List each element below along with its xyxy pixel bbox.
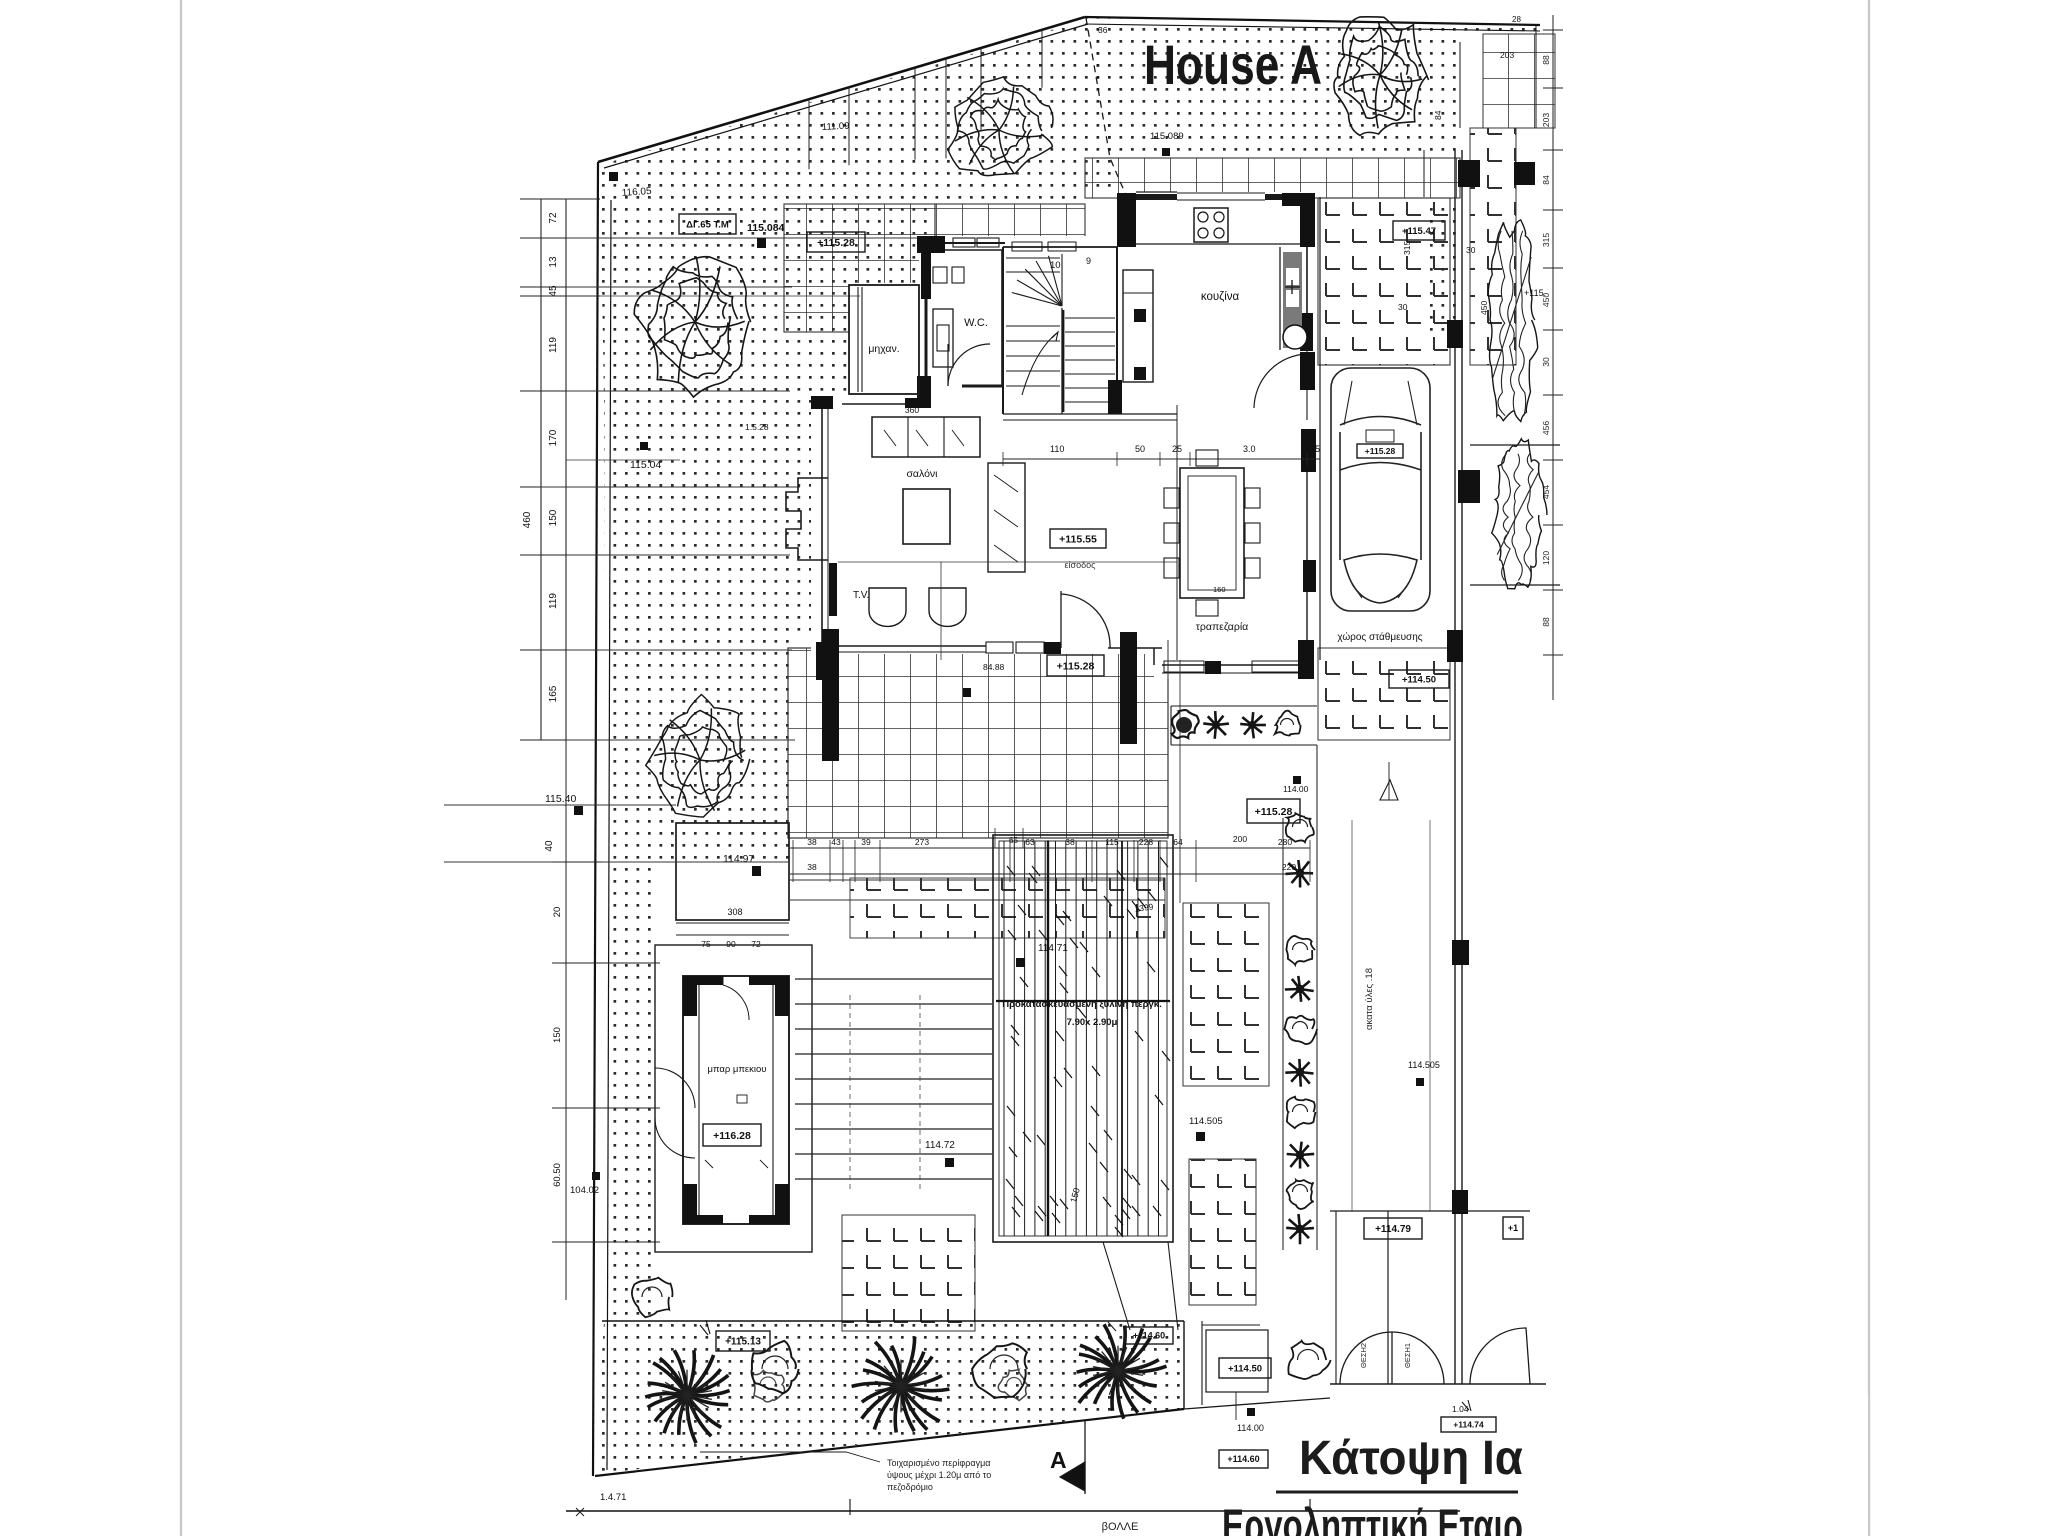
svg-text:88: 88: [1541, 55, 1551, 65]
svg-text:116.05: 116.05: [621, 186, 652, 199]
svg-text:10: 10: [1050, 260, 1061, 271]
svg-text:+115.: +115.: [1524, 288, 1546, 298]
svg-text:114.505: 114.505: [1408, 1060, 1440, 1070]
svg-text:84.88: 84.88: [983, 662, 1005, 672]
svg-text:1.4.71: 1.4.71: [600, 1492, 626, 1503]
svg-text:114.00: 114.00: [1237, 1423, 1264, 1433]
svg-text:60.50: 60.50: [552, 1163, 563, 1187]
svg-text:χώρος στάθμευσης: χώρος στάθμευσης: [1337, 631, 1422, 643]
svg-text:7.90x 2.90μ: 7.90x 2.90μ: [1067, 1017, 1118, 1028]
svg-text:28: 28: [1512, 15, 1521, 24]
svg-text:+114.60: +114.60: [1133, 1331, 1165, 1341]
svg-text:115.40: 115.40: [545, 793, 576, 805]
svg-text:+115.13: +115.13: [725, 1337, 761, 1348]
svg-text:Εργοληπτική Εταιρ: Εργοληπτική Εταιρ: [1222, 1499, 1523, 1536]
svg-text:Κάτοψη Ια: Κάτοψη Ια: [1299, 1432, 1523, 1485]
svg-text:38: 38: [807, 837, 817, 847]
svg-text:+114.50: +114.50: [1228, 1363, 1262, 1374]
svg-text:203: 203: [1541, 113, 1551, 127]
svg-text:+114.60: +114.60: [1227, 1454, 1259, 1464]
svg-text:+114.50: +114.50: [1402, 674, 1436, 685]
svg-text:160: 160: [1213, 585, 1226, 594]
svg-text:150: 150: [548, 509, 559, 526]
svg-text:σαλόνι: σαλόνι: [906, 468, 938, 480]
svg-text:65: 65: [1009, 836, 1018, 845]
svg-text:Τοιχαρισμένο περίφραγμα: Τοιχαρισμένο περίφραγμα: [887, 1458, 990, 1468]
svg-text:20: 20: [552, 907, 563, 918]
svg-text:119: 119: [548, 337, 559, 353]
svg-text:+115.28: +115.28: [1057, 660, 1095, 672]
svg-text:200: 200: [1233, 834, 1247, 844]
svg-text:308: 308: [727, 907, 742, 917]
svg-text:ακατα ύλες .18: ακατα ύλες .18: [1364, 968, 1375, 1030]
svg-text:30: 30: [1541, 357, 1551, 367]
svg-text:πεζοδρόμιο: πεζοδρόμιο: [887, 1482, 933, 1492]
svg-text:38: 38: [807, 862, 817, 872]
svg-text:ΔΓ.65 Τ.Μ: ΔΓ.65 Τ.Μ: [686, 219, 729, 230]
svg-text:40: 40: [544, 840, 555, 852]
svg-text:315: 315: [1541, 233, 1551, 247]
svg-text:84: 84: [1433, 110, 1443, 120]
svg-text:1.04: 1.04: [1452, 1404, 1469, 1414]
svg-text:9: 9: [1086, 256, 1091, 266]
svg-text:30: 30: [1398, 302, 1408, 312]
svg-text:W.C.: W.C.: [964, 317, 988, 329]
svg-text:90: 90: [726, 939, 736, 949]
svg-text:119: 119: [548, 593, 559, 609]
svg-text:450: 450: [1479, 301, 1489, 315]
svg-text:72: 72: [751, 939, 761, 949]
svg-text:A: A: [1050, 1447, 1067, 1473]
svg-text:165: 165: [548, 685, 559, 702]
svg-text:House A: House A: [1144, 33, 1322, 96]
svg-text:36: 36: [1098, 25, 1108, 35]
svg-text:63: 63: [1025, 837, 1035, 847]
svg-text:115.089: 115.089: [1150, 131, 1184, 142]
svg-text:+115.28: +115.28: [1365, 446, 1396, 456]
svg-text:456: 456: [1541, 421, 1551, 435]
svg-text:280: 280: [1278, 837, 1292, 847]
svg-text:114.505: 114.505: [1189, 1116, 1223, 1127]
svg-text:βΟΛΛΕ: βΟΛΛΕ: [1102, 1521, 1139, 1533]
svg-text:228: 228: [1139, 837, 1153, 847]
svg-text:T.V.: T.V.: [853, 590, 869, 601]
svg-text:+115.28: +115.28: [1255, 806, 1293, 818]
svg-text:+1: +1: [1508, 1223, 1518, 1233]
svg-text:460: 460: [522, 511, 533, 528]
svg-text:115.04: 115.04: [630, 459, 661, 471]
svg-text:μηχαν.: μηχαν.: [868, 343, 899, 355]
svg-text:84: 84: [1541, 175, 1551, 185]
svg-text:72: 72: [548, 212, 559, 224]
svg-text:13: 13: [548, 256, 559, 268]
svg-text:25: 25: [1172, 444, 1182, 454]
svg-text:114.97: 114.97: [723, 853, 754, 865]
svg-text:+114.74: +114.74: [1453, 1420, 1484, 1430]
svg-text:+116.28: +116.28: [713, 1130, 751, 1142]
svg-text:111.09: 111.09: [822, 121, 850, 133]
svg-text:220: 220: [1282, 862, 1296, 872]
svg-text:ύψους μέχρι 1.20μ από το: ύψους μέχρι 1.20μ από το: [887, 1470, 991, 1480]
svg-text:360: 360: [905, 405, 919, 415]
svg-text:είσοδος: είσοδος: [1065, 560, 1097, 570]
svg-text:3.0: 3.0: [1243, 444, 1256, 454]
svg-text:273: 273: [915, 837, 929, 847]
svg-text:+115.55: +115.55: [1059, 533, 1097, 545]
svg-text:64: 64: [1173, 837, 1183, 847]
svg-text:120: 120: [1541, 551, 1551, 565]
svg-text:+114.79: +114.79: [1375, 1224, 1411, 1235]
svg-text:50: 50: [1135, 444, 1145, 454]
svg-text:115.084: 115.084: [747, 222, 785, 234]
svg-text:170: 170: [548, 429, 559, 446]
svg-text:104.02: 104.02: [570, 1185, 599, 1196]
svg-text:88: 88: [1541, 617, 1551, 627]
svg-text:114.00: 114.00: [1283, 784, 1309, 794]
svg-text:43: 43: [831, 837, 841, 847]
svg-text:115: 115: [1105, 837, 1119, 847]
svg-text:30: 30: [1466, 245, 1476, 255]
svg-text:+115.28: +115.28: [817, 237, 855, 249]
svg-text:39: 39: [861, 837, 871, 847]
svg-text:150: 150: [552, 1027, 563, 1043]
svg-text:110: 110: [1050, 444, 1064, 454]
svg-text:315: 315: [1402, 241, 1412, 255]
svg-text:τραπεζαρία: τραπεζαρία: [1196, 621, 1249, 633]
svg-text:ΘΕΣΗ1: ΘΕΣΗ1: [1403, 1343, 1412, 1368]
svg-text:κουζίνα: κουζίνα: [1201, 291, 1240, 303]
svg-text:203: 203: [1500, 50, 1514, 60]
svg-text:1.5.28: 1.5.28: [745, 422, 769, 432]
svg-text:25: 25: [1310, 444, 1320, 454]
svg-text:μπαρ μπεκιου: μπαρ μπεκιου: [707, 1064, 766, 1075]
svg-text:ΘΕΣΗ2: ΘΕΣΗ2: [1359, 1343, 1368, 1368]
svg-text:114.71: 114.71: [1038, 943, 1068, 954]
svg-text:+115.47: +115.47: [1402, 226, 1436, 237]
svg-text:45: 45: [548, 285, 559, 297]
svg-text:454: 454: [1541, 485, 1551, 499]
svg-text:75: 75: [701, 939, 711, 949]
svg-text:114.72: 114.72: [925, 1140, 955, 1151]
svg-text:38: 38: [1065, 837, 1075, 847]
